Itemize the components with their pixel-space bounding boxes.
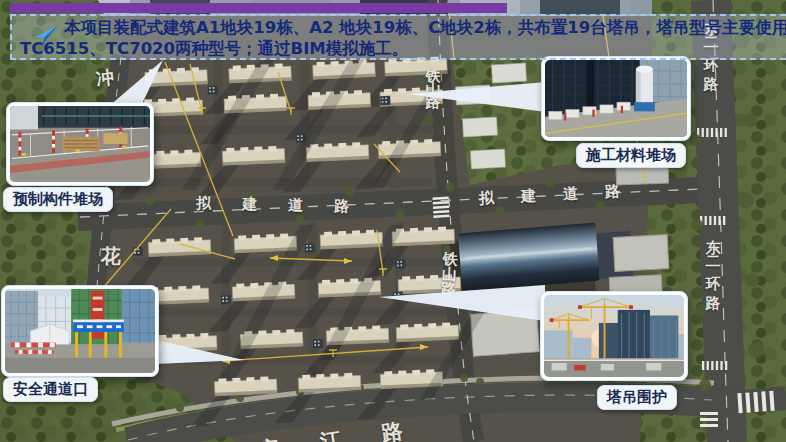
safety-passage-entrance-photo	[5, 289, 155, 373]
callout-prefab-yard	[6, 102, 154, 186]
construction-material-yard-photo	[545, 60, 687, 137]
prefab-component-yard-photo	[10, 106, 150, 182]
project-info-banner: 本项目装配式建筑A1地块19栋、A2 地块19栋、C地块2栋，共布置19台塔吊，…	[10, 14, 786, 60]
callout-material-yard	[541, 56, 691, 141]
paper-plane-arrow-icon	[32, 23, 60, 47]
callout-safety-passage	[1, 285, 159, 377]
label-crane-fence: 塔吊围护	[597, 385, 677, 410]
bim-site-slide: 铁山路 铁山路 拟建道路 拟建道路 东二环路 东二环路 安江路 花 冲	[0, 0, 786, 442]
label-prefab-yard: 预制构件堆场	[3, 187, 113, 212]
tower-crane-enclosure-photo	[544, 295, 684, 377]
label-safety-passage: 安全通道口	[3, 377, 98, 402]
banner-text-line1: 本项目装配式建筑A1地块19栋、A2 地块19栋、C地块2栋，共布置19台塔吊，…	[12, 16, 786, 38]
purple-accent-bar	[10, 3, 507, 13]
label-material-yard: 施工材料堆场	[576, 143, 686, 168]
callout-crane-fence	[540, 291, 688, 381]
banner-text-line2: TC6515、TC7020两种型号；通过BIM模拟施工。	[12, 38, 786, 59]
